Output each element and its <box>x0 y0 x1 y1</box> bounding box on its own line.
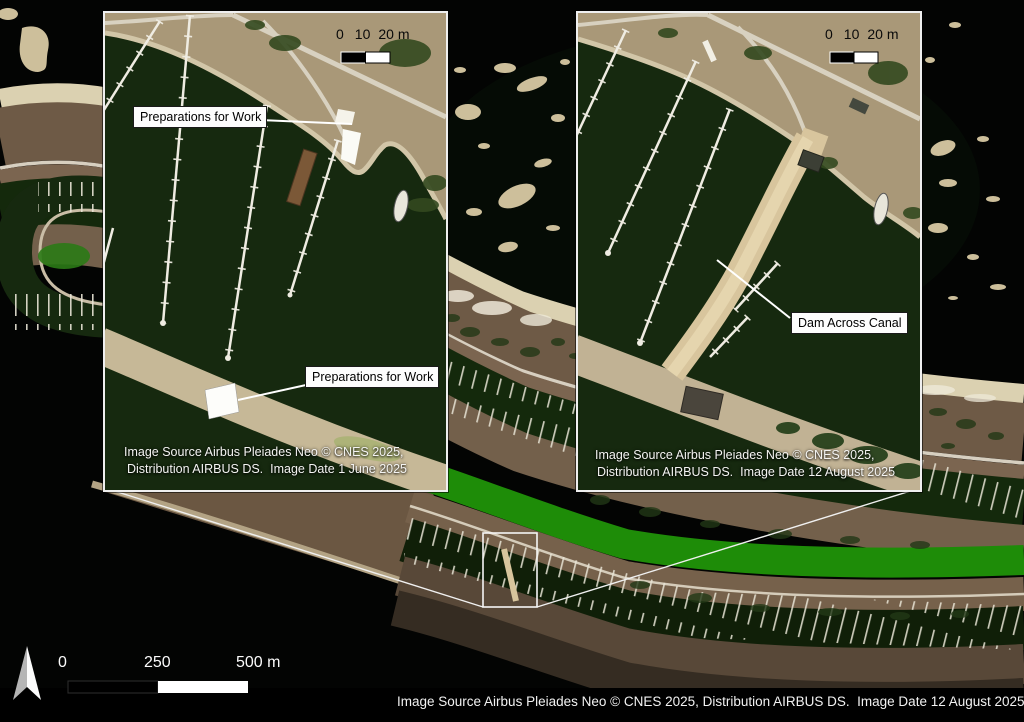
main-attribution: Image Source Airbus Pleiades Neo © CNES … <box>397 694 1024 709</box>
satellite-figure: 0 250 500 m Image Source Airbus Pleiades… <box>0 0 1024 722</box>
inset-june-attribution: Image Source Airbus Pleiades Neo © CNES … <box>124 444 407 478</box>
inset-june-scale-text: 0 10 20 m <box>336 26 410 42</box>
label-preparations-bottom: Preparations for Work <box>305 366 439 388</box>
inset-june-scene <box>105 13 446 490</box>
inset-august-scale-text: 0 10 20 m <box>825 26 899 42</box>
main-scale-0: 0 <box>58 654 67 672</box>
main-scale-500: 500 m <box>236 654 280 672</box>
inset-august-attribution: Image Source Airbus Pleiades Neo © CNES … <box>595 447 895 481</box>
label-preparations-top: Preparations for Work <box>133 106 267 128</box>
inset-august-scale-bar <box>830 52 878 63</box>
inset-june: 0 10 20 m Preparations for Work Preparat… <box>103 11 448 492</box>
inset-june-scale-bar <box>341 52 390 63</box>
inset-august: 0 10 20 m Dam Across Canal Image Source … <box>576 11 922 492</box>
main-scale-bar <box>68 681 248 693</box>
inset-august-scene <box>578 13 920 490</box>
main-scale-250: 250 <box>144 654 171 672</box>
label-dam-across-canal: Dam Across Canal <box>791 312 908 334</box>
